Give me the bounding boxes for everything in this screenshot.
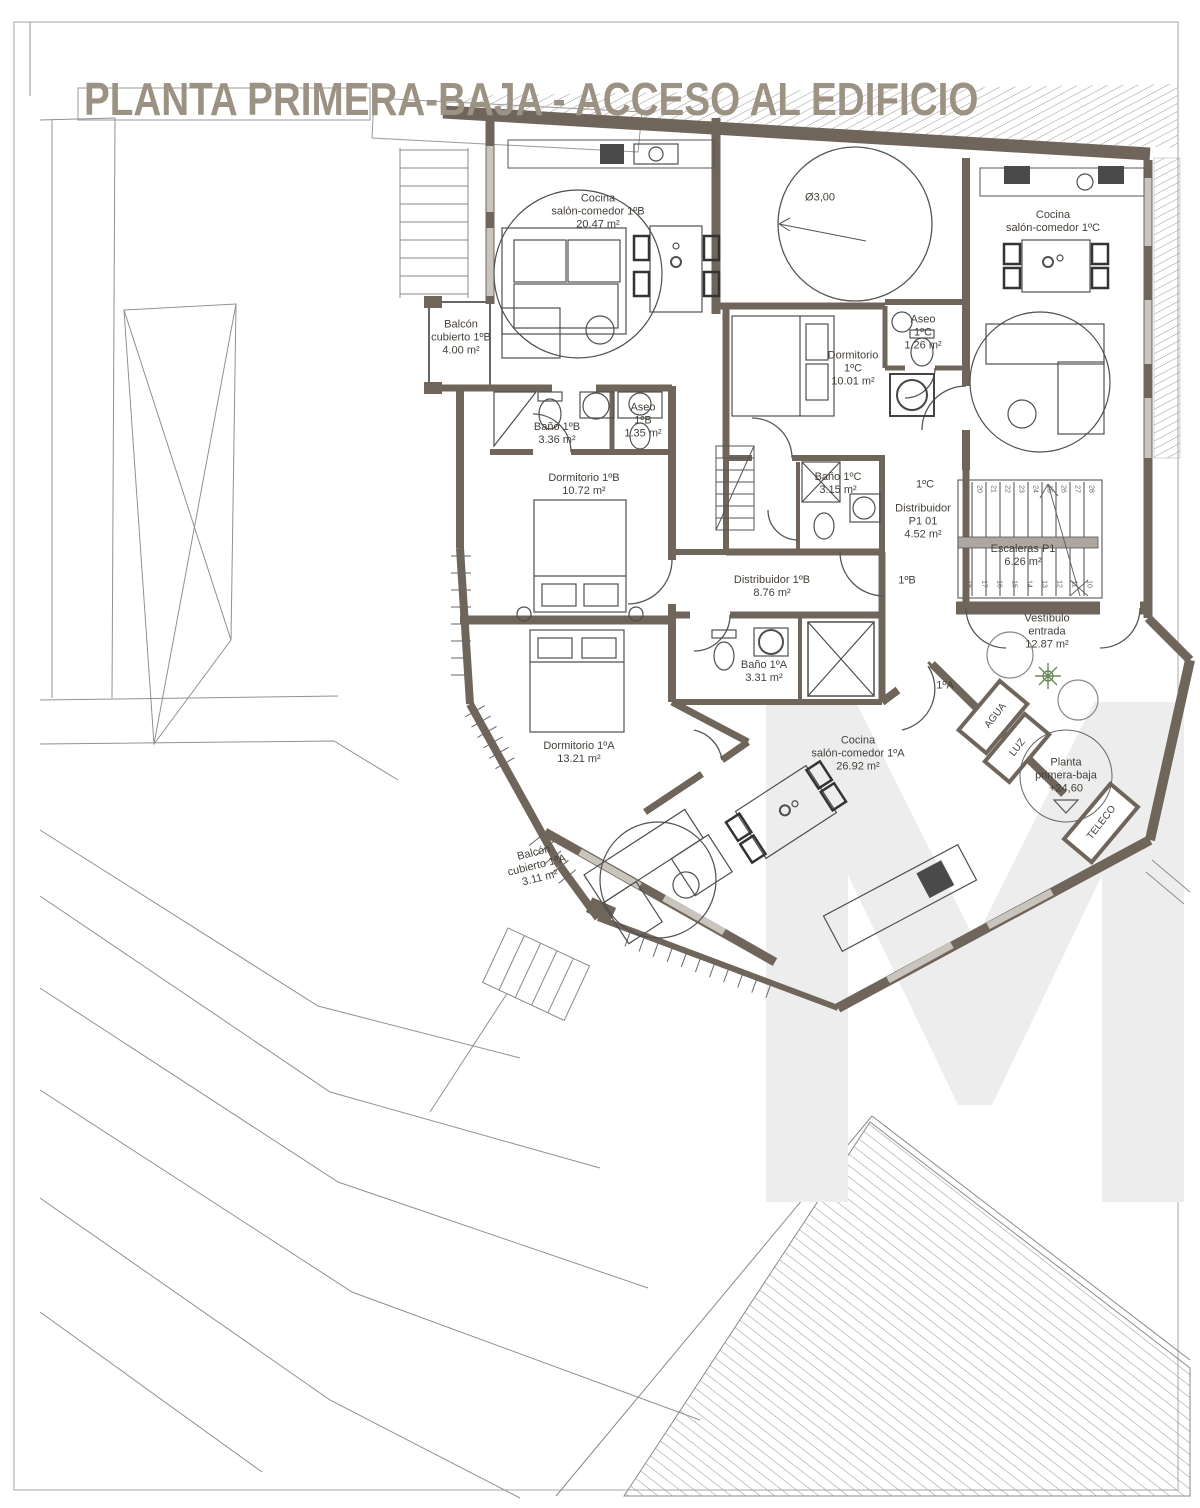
patio-circle <box>778 147 932 301</box>
floor-plan-page: PLANTA PRIMERA-BAJA - ACCESO AL EDIFICIO… <box>0 0 1200 1508</box>
floor-plan-drawing <box>0 0 1200 1508</box>
page-title: PLANTA PRIMERA-BAJA - ACCESO AL EDIFICIO <box>84 72 978 126</box>
stairs-p1 <box>958 480 1102 598</box>
